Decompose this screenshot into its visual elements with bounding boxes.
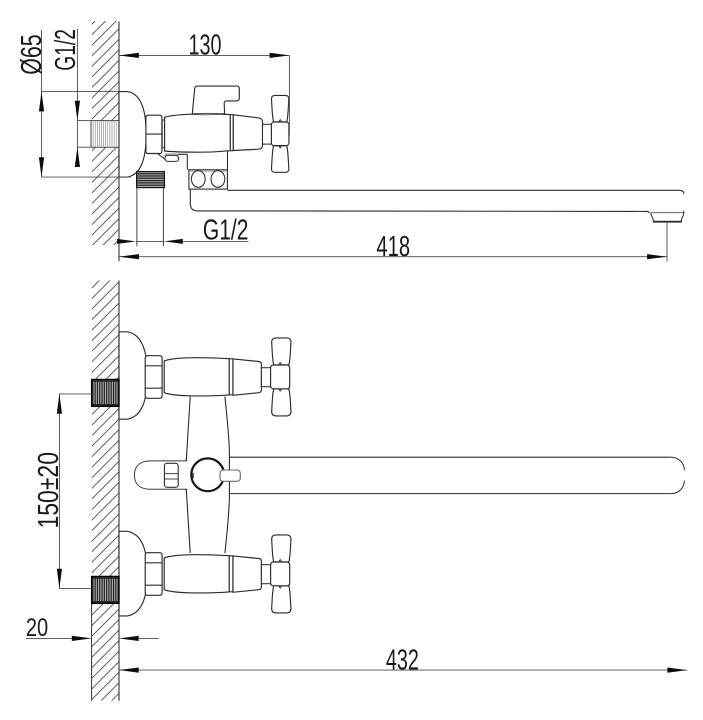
- svg-text:Ø65: Ø65: [16, 34, 48, 75]
- svg-text:418: 418: [376, 231, 410, 263]
- svg-text:20: 20: [26, 614, 48, 642]
- svg-text:G1/2: G1/2: [50, 29, 82, 71]
- svg-text:130: 130: [189, 29, 222, 61]
- svg-text:150±20: 150±20: [33, 452, 65, 529]
- svg-text:G1/2: G1/2: [203, 215, 249, 247]
- svg-text:432: 432: [386, 645, 419, 677]
